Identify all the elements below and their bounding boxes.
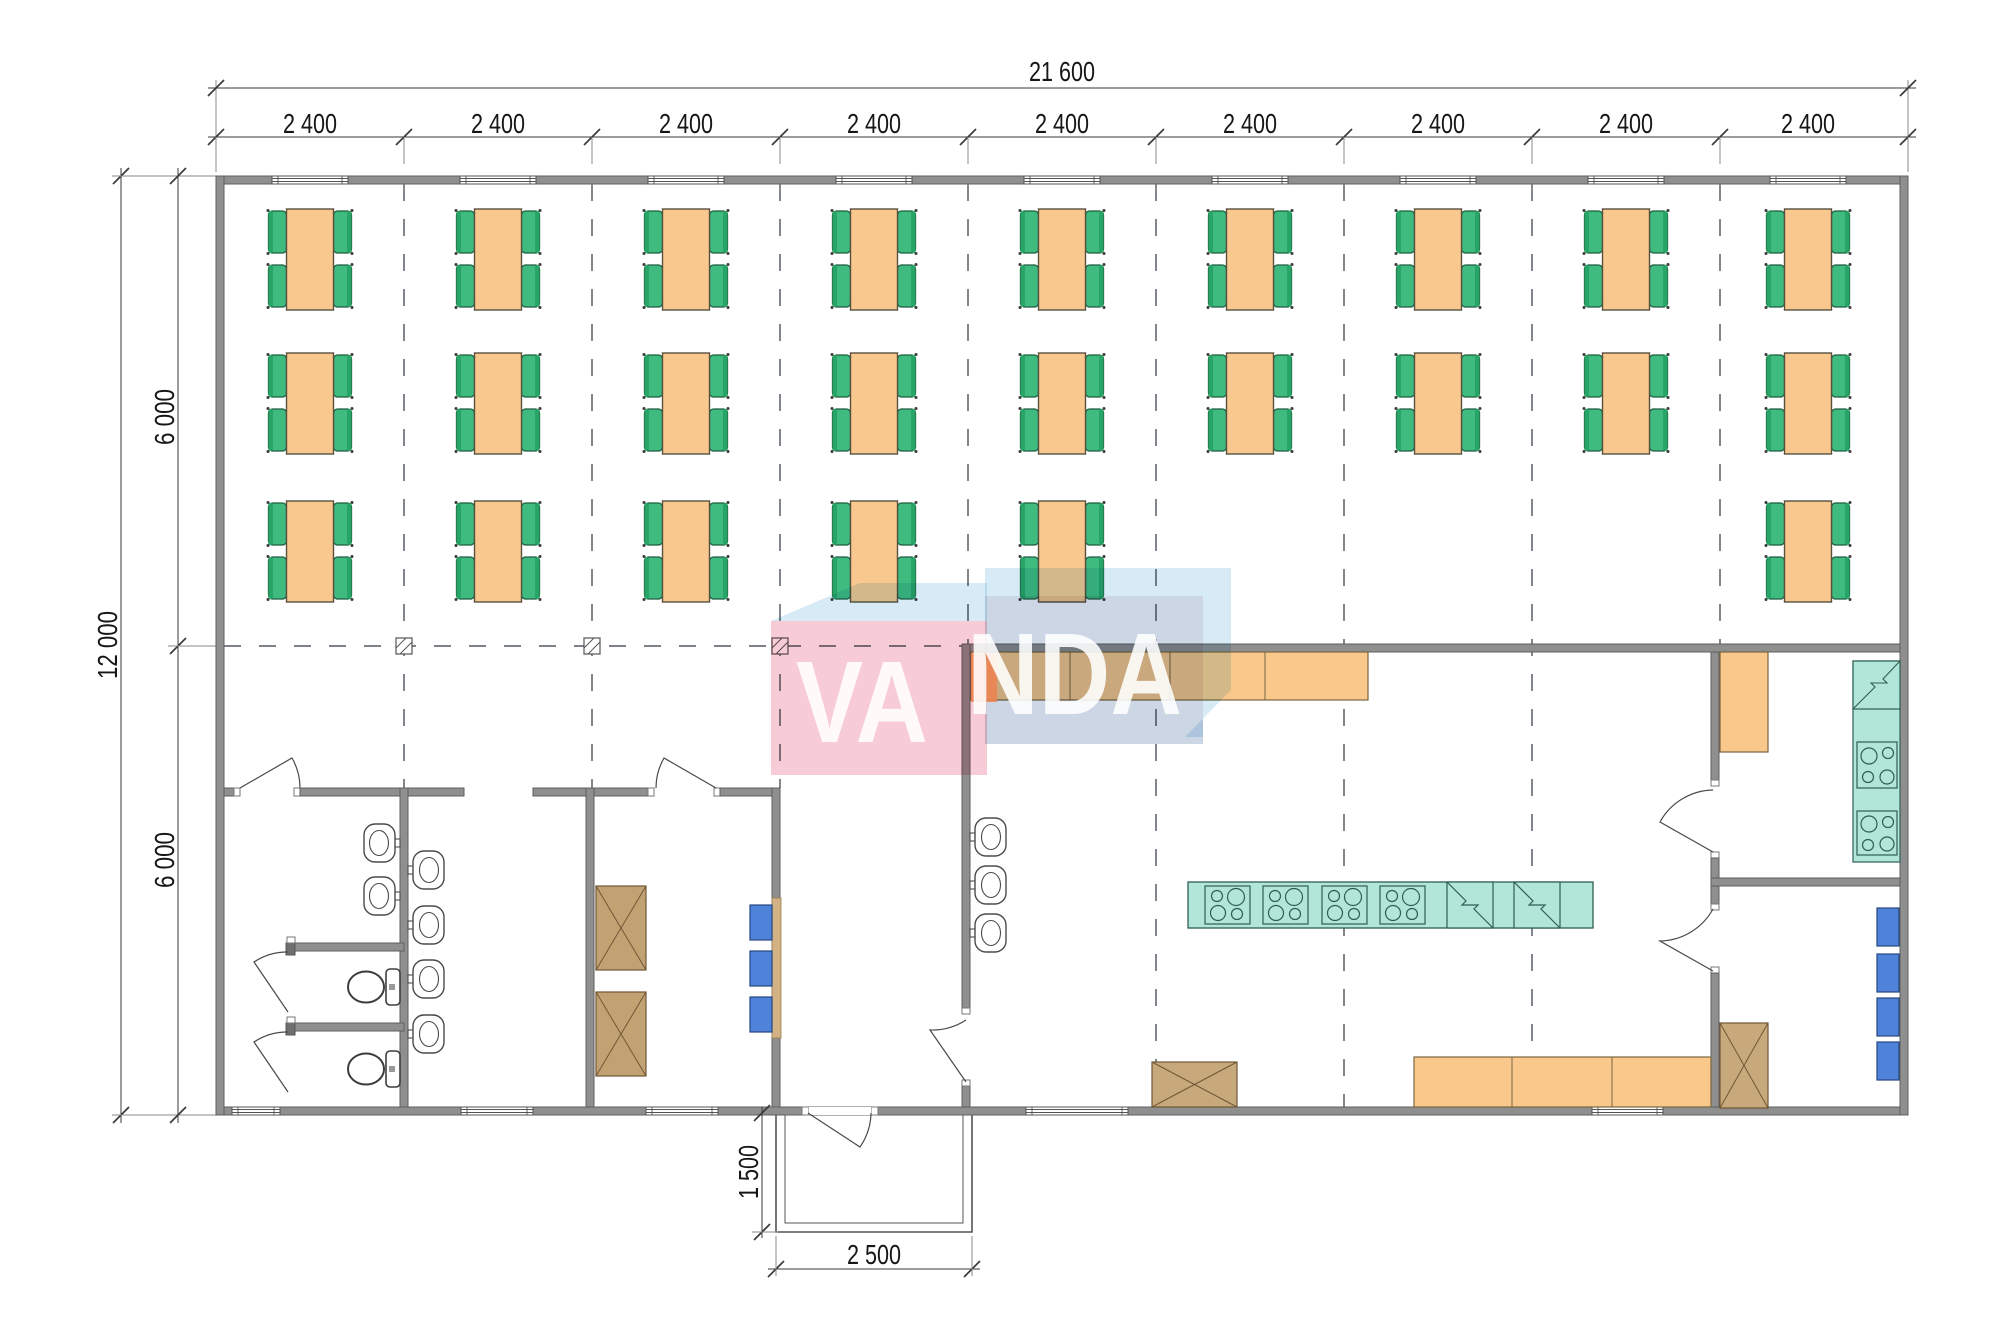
svg-text:6 000: 6 000 — [149, 389, 180, 445]
svg-text:2 400: 2 400 — [1599, 108, 1653, 139]
svg-text:12 000: 12 000 — [92, 611, 123, 679]
svg-text:2 400: 2 400 — [1035, 108, 1089, 139]
svg-text:2 400: 2 400 — [471, 108, 525, 139]
svg-text:21 600: 21 600 — [1029, 56, 1095, 87]
svg-text:VA: VA — [796, 637, 928, 767]
svg-text:6 000: 6 000 — [149, 832, 180, 888]
svg-text:2 400: 2 400 — [847, 108, 901, 139]
svg-text:2 400: 2 400 — [1223, 108, 1277, 139]
svg-text:2 400: 2 400 — [283, 108, 337, 139]
svg-text:2 400: 2 400 — [1411, 108, 1465, 139]
svg-text:1 500: 1 500 — [733, 1145, 764, 1199]
svg-text:NDA: NDA — [967, 609, 1182, 739]
svg-text:2 400: 2 400 — [1781, 108, 1835, 139]
svg-text:2 400: 2 400 — [659, 108, 713, 139]
svg-text:2 500: 2 500 — [847, 1239, 901, 1270]
